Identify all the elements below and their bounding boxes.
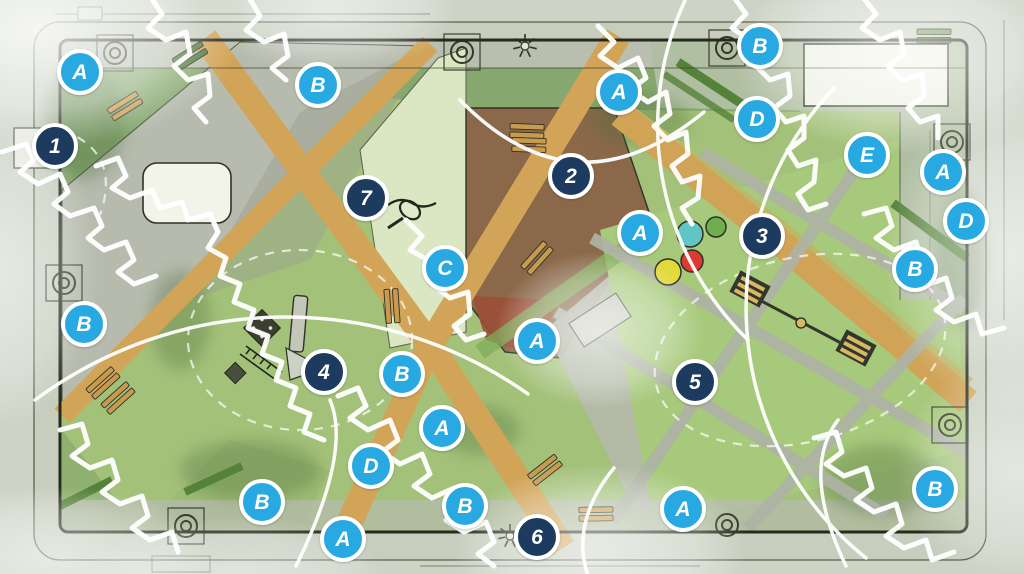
marker-letter-A-26[interactable]: A — [660, 486, 706, 532]
marker-number-3-2[interactable]: 3 — [739, 213, 785, 259]
marker-letter-A-16[interactable]: A — [617, 210, 663, 256]
marker-number-1-0[interactable]: 1 — [32, 123, 78, 169]
marker-letter-D-11[interactable]: D — [734, 96, 780, 142]
marker-letter-A-9[interactable]: A — [596, 69, 642, 115]
marker-letter-B-10[interactable]: B — [737, 23, 783, 69]
marker-number-2-1[interactable]: 2 — [548, 153, 594, 199]
marker-letter-B-23[interactable]: B — [239, 479, 285, 525]
marker-letter-E-12[interactable]: E — [844, 132, 890, 178]
marker-letter-A-7[interactable]: A — [57, 49, 103, 95]
marker-letter-B-15[interactable]: B — [892, 246, 938, 292]
marker-letter-C-17[interactable]: C — [422, 245, 468, 291]
marker-number-7-6[interactable]: 7 — [343, 175, 389, 221]
marker-letter-B-8[interactable]: B — [295, 62, 341, 108]
marker-letter-B-27[interactable]: B — [912, 466, 958, 512]
marker-letter-A-13[interactable]: A — [920, 149, 966, 195]
marker-letter-B-18[interactable]: B — [61, 301, 107, 347]
marker-layer: 1234567ABABDEADBACBABADBBAAB — [0, 0, 1024, 574]
marker-letter-B-24[interactable]: B — [442, 483, 488, 529]
marker-letter-D-22[interactable]: D — [348, 443, 394, 489]
marker-number-4-3[interactable]: 4 — [301, 349, 347, 395]
marker-number-5-4[interactable]: 5 — [672, 359, 718, 405]
marker-letter-B-20[interactable]: B — [379, 351, 425, 397]
marker-letter-D-14[interactable]: D — [943, 198, 989, 244]
park-plan-stage: 1234567ABABDEADBACBABADBBAAB — [0, 0, 1024, 574]
marker-letter-A-21[interactable]: A — [419, 405, 465, 451]
marker-letter-A-25[interactable]: A — [320, 516, 366, 562]
marker-letter-A-19[interactable]: A — [514, 318, 560, 364]
marker-number-6-5[interactable]: 6 — [514, 514, 560, 560]
